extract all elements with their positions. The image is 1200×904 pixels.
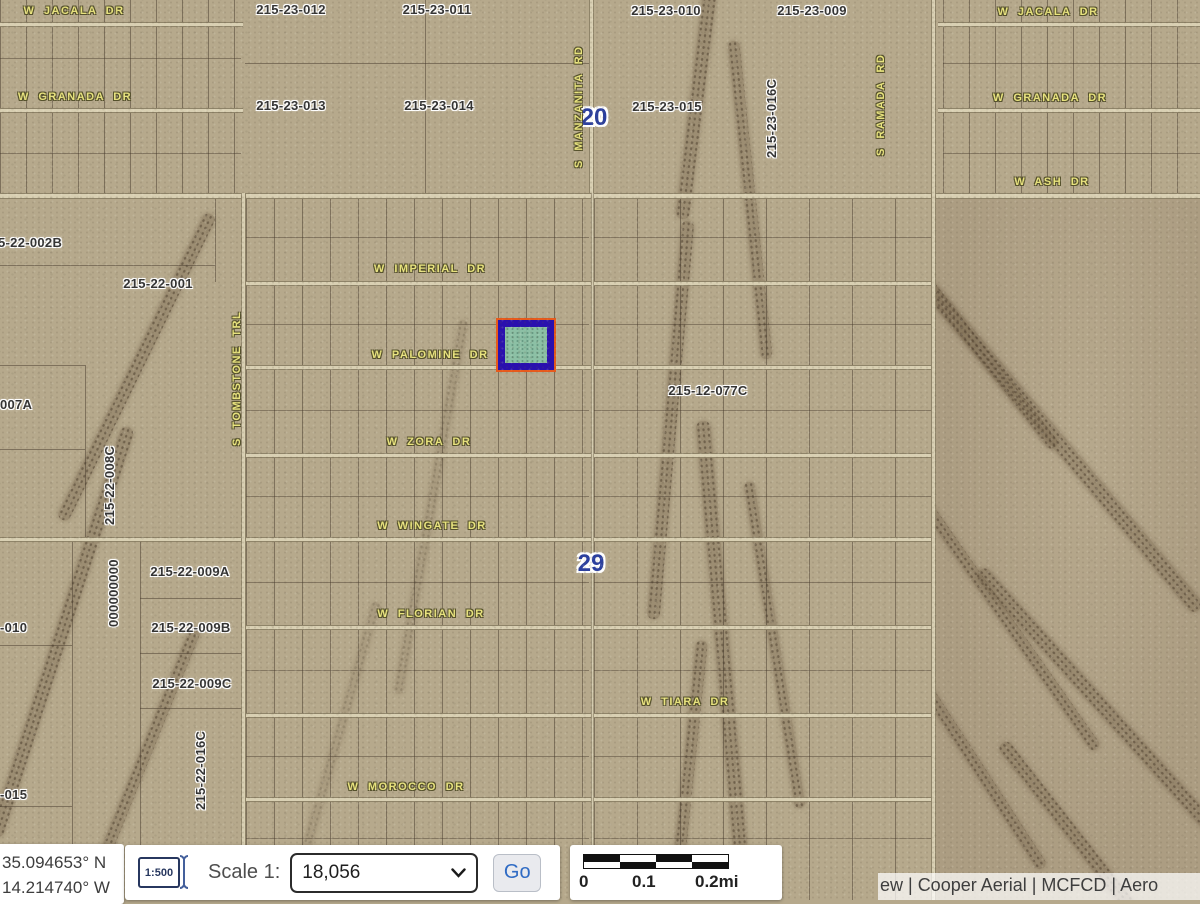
street-label-tombstone: S TOMBSTONE TRL	[231, 266, 243, 446]
parcel-label-215-22-009b: 215-22-009B	[151, 620, 230, 635]
map-canvas[interactable]: 20 29 W JACALA DR W JACALA DR W GRANADA …	[0, 0, 1200, 900]
parcel-label-215-22-016c: 215-22-016C	[193, 710, 208, 810]
street-label-granada-west: W GRANADA DR	[18, 91, 132, 103]
road-w-zora-dr	[243, 453, 935, 458]
coordinate-readout: 35.094653° N 14.214740° W	[0, 844, 124, 904]
parcel-label-215-23-014: 215-23-014	[404, 98, 474, 113]
street-label-ash: W ASH DR	[1014, 176, 1089, 188]
parcel-label-215-22-009a: 215-22-009A	[150, 564, 229, 579]
longitude-value: 14.214740° W	[2, 876, 118, 901]
street-label-morocco: W MOROCCO DR	[347, 781, 464, 793]
parcel-label-215-23-013: 215-23-013	[256, 98, 326, 113]
scalebar-tick-02mi: 0.2mi	[695, 872, 738, 892]
street-label-manzanita: S MANZANITA RD	[573, 8, 585, 168]
parcel-label-215-23-009: 215-23-009	[777, 3, 847, 18]
parcel-label-015: -015	[0, 787, 27, 802]
street-label-jacala-west: W JACALA DR	[23, 5, 124, 17]
road-w-wingate-dr	[0, 537, 935, 542]
street-label-imperial: W IMPERIAL DR	[374, 263, 486, 275]
selected-parcel-highlight[interactable]	[498, 320, 554, 370]
scale-control-panel: 1:500 Scale 1: 18,056 Go	[125, 845, 560, 900]
street-label-florian: W FLORIAN DR	[377, 608, 484, 620]
street-label-wingate: W WINGATE DR	[377, 520, 487, 532]
road-w-granada-dr-west	[0, 108, 243, 113]
road-w-imperial-dr	[243, 281, 935, 286]
latitude-value: 35.094653° N	[2, 851, 118, 876]
desert-region-east	[936, 199, 1200, 900]
parcel-label-010: -010	[0, 620, 27, 635]
parcel-label-215-22-008c: 215-22-008C	[102, 395, 117, 525]
scalebar-panel: 0 0.1 0.2mi	[570, 845, 782, 900]
road-w-jacala-dr-west	[0, 22, 243, 27]
street-label-palomine: W PALOMINE DR	[371, 349, 488, 361]
road-w-tiara-dr	[243, 713, 935, 718]
parcel-label-215-12-077c: 215-12-077C	[668, 383, 747, 398]
road-w-jacala-dr-east	[938, 22, 1200, 27]
scale-select-value: 18,056	[302, 862, 451, 884]
scalebar-tick-0: 0	[579, 872, 588, 892]
road-s-manzanita-rd	[589, 0, 594, 193]
road-s-ramada-rd	[931, 0, 936, 900]
street-label-granada-east: W GRANADA DR	[993, 92, 1107, 104]
map-attribution: ew | Cooper Aerial | MCFCD | Aero	[878, 873, 1200, 900]
parcel-label-215-23-016c: 215-23-016C	[764, 58, 779, 158]
scale-select[interactable]: 18,056	[290, 853, 478, 893]
parcel-label-215-23-010: 215-23-010	[631, 3, 701, 18]
parcel-label-zeros: 000000000	[106, 543, 121, 627]
scalebar-tick-01: 0.1	[632, 872, 656, 892]
road-w-palomine-dr	[243, 365, 935, 370]
parcel-label-215-22-002b: 5-22-002B	[0, 235, 62, 250]
scale-ratio-icon: 1:500	[138, 857, 180, 888]
parcel-label-215-22-007a: 007A	[0, 397, 32, 412]
road-w-florian-dr	[243, 625, 935, 630]
parcel-label-215-22-009c: 215-22-009C	[152, 676, 231, 691]
go-button[interactable]: Go	[493, 854, 541, 892]
street-label-zora: W ZORA DR	[387, 436, 472, 448]
section-number-29: 29	[578, 550, 605, 578]
street-label-jacala-east: W JACALA DR	[997, 6, 1098, 18]
parcel-label-215-23-012: 215-23-012	[256, 2, 326, 17]
chevron-down-icon	[451, 868, 466, 878]
parcel-label-215-23-011: 215-23-011	[403, 2, 472, 17]
street-label-tiara: W TIARA DR	[641, 696, 730, 708]
parcel-label-215-22-001: 215-22-001	[123, 276, 193, 291]
street-label-ramada: S RAMADA RD	[875, 16, 887, 156]
scale-label: Scale 1:	[208, 861, 280, 884]
scalebar-graphic	[583, 854, 729, 869]
road-w-ash-dr	[0, 193, 1200, 199]
text-cursor-icon	[178, 854, 190, 890]
road-w-granada-dr-east	[938, 108, 1200, 113]
road-w-morocco-dr	[243, 797, 935, 802]
road-section-line-south	[591, 193, 594, 900]
parcel-label-215-23-015: 215-23-015	[632, 99, 702, 114]
